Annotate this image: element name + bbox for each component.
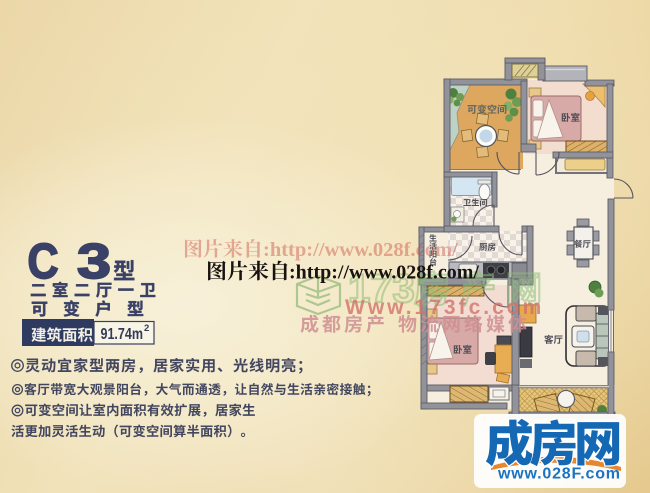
svg-text:2: 2 [144, 323, 149, 334]
svg-text::http://www.028f.com/: :http://www.028f.com/ [263, 239, 458, 261]
svg-text:3: 3 [77, 235, 111, 289]
svg-text:91.74m: 91.74m [101, 326, 144, 343]
svg-text::http://www.028f.com/: :http://www.028f.com/ [289, 262, 479, 284]
svg-text:C: C [28, 235, 59, 289]
svg-text:www.028F.com: www.028F.com [497, 466, 621, 483]
